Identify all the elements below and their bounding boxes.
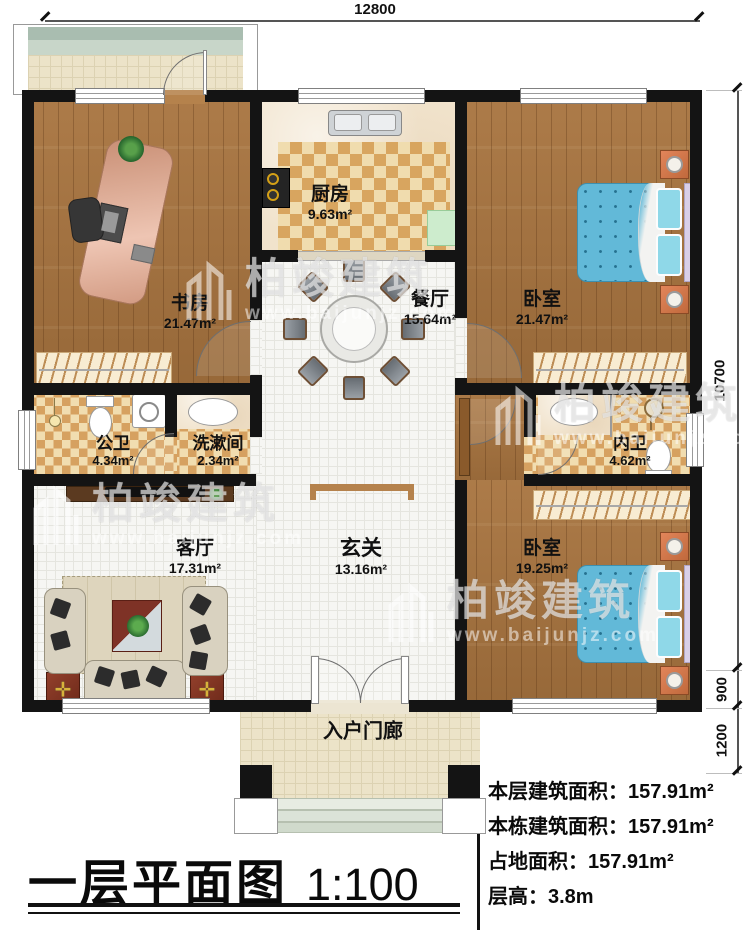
door-gap xyxy=(250,437,262,474)
dining-table-top xyxy=(332,307,376,351)
room-label-public-bath: 公卫 4.34m² xyxy=(92,434,133,468)
nightstand xyxy=(660,150,689,179)
stat-label: 本栋建筑面积： xyxy=(488,816,628,838)
stat-row: 本栋建筑面积：157.91m² xyxy=(488,810,714,845)
washer-drum xyxy=(139,402,159,422)
ensuite-sink xyxy=(550,398,598,426)
title-underline xyxy=(28,903,460,907)
porch-step xyxy=(270,798,450,810)
stat-value: 157.91m² xyxy=(628,781,714,803)
porch-column xyxy=(240,765,272,798)
stat-label: 占地面积： xyxy=(488,851,588,873)
door-gap xyxy=(455,318,467,378)
bedroom1-wardrobe xyxy=(533,352,687,385)
plant xyxy=(209,488,223,500)
nightstand xyxy=(660,285,689,314)
stat-value: 157.91m² xyxy=(588,851,674,873)
wall xyxy=(250,395,262,437)
living-window xyxy=(62,698,210,714)
nightstand xyxy=(660,666,689,695)
entry-door-leaf xyxy=(311,656,319,704)
kitchen-mat xyxy=(427,210,457,246)
pillow xyxy=(656,188,682,230)
toilet-tank xyxy=(86,396,114,407)
dining-chair xyxy=(283,318,307,340)
title-underline xyxy=(28,912,460,914)
pillow xyxy=(656,616,682,658)
room-name: 玄关 xyxy=(335,537,387,561)
porch-column-base xyxy=(234,798,278,834)
terrace-roof-band xyxy=(28,40,243,55)
pillow xyxy=(656,570,682,612)
dimension-stub xyxy=(706,90,742,91)
bedroom2-door-leaf xyxy=(459,398,470,476)
room-area: 4.62m² xyxy=(609,453,650,468)
study-window xyxy=(75,88,165,104)
porch-step xyxy=(270,810,450,822)
room-area: 15.64m² xyxy=(404,311,456,327)
wall xyxy=(455,102,467,318)
wall xyxy=(250,250,298,262)
wall xyxy=(461,383,696,395)
nightstand xyxy=(660,532,689,561)
room-name: 公卫 xyxy=(92,434,133,454)
room-label-bedroom2: 卧室 19.25m² xyxy=(516,538,568,576)
room-name: 入户门廊 xyxy=(323,721,403,744)
study-wardrobe xyxy=(36,352,172,385)
washroom-sink xyxy=(188,398,238,426)
stat-value: 3.8m xyxy=(548,886,594,908)
building-stats: 本层建筑面积：157.91m² 本栋建筑面积：157.91m² 占地面积：157… xyxy=(488,775,714,915)
dining-chair xyxy=(343,376,365,400)
room-name: 厨房 xyxy=(308,184,352,206)
entry-door-leaf xyxy=(401,656,409,704)
wall xyxy=(34,474,256,486)
room-area: 13.16m² xyxy=(335,561,387,577)
sofa-pillow xyxy=(189,651,209,671)
bedroom2-wardrobe xyxy=(533,490,691,520)
wall xyxy=(250,375,262,395)
title-divider xyxy=(477,834,480,930)
ensuite-window xyxy=(686,413,704,467)
door-gap xyxy=(250,320,262,375)
room-label-dining: 餐厅 15.64m² xyxy=(404,289,456,327)
burner xyxy=(267,189,279,201)
wall xyxy=(22,90,34,712)
porch-step xyxy=(270,822,450,833)
wall xyxy=(250,102,262,320)
wall xyxy=(690,90,702,712)
terrace-door-leaf xyxy=(203,50,207,95)
dimension-label-right-porch: 1200 xyxy=(714,701,731,781)
wall xyxy=(524,395,536,437)
room-name: 卧室 xyxy=(516,289,568,311)
room-label-study: 书房 21.47m² xyxy=(164,293,216,331)
plant xyxy=(118,136,144,162)
wall xyxy=(455,480,467,700)
porch-column xyxy=(448,765,480,798)
kitchen-window xyxy=(298,88,425,104)
sink-basin xyxy=(334,114,362,131)
stat-row: 占地面积：157.91m² xyxy=(488,845,714,880)
room-label-kitchen: 厨房 9.63m² xyxy=(308,184,352,222)
room-area: 21.47m² xyxy=(516,311,568,327)
stat-row: 层高：3.8m xyxy=(488,880,714,915)
public-bath-window xyxy=(18,410,36,470)
room-area: 2.34m² xyxy=(193,453,244,468)
bedroom1-window xyxy=(520,88,647,104)
terrace-roof-band xyxy=(28,27,243,40)
kitchen-opening-threshold xyxy=(298,251,425,261)
stat-label: 本层建筑面积： xyxy=(488,781,628,803)
room-area: 4.34m² xyxy=(92,453,133,468)
room-name: 内卫 xyxy=(609,434,650,454)
room-area: 9.63m² xyxy=(308,206,352,222)
room-area: 17.31m² xyxy=(169,560,221,576)
room-label-washroom: 洗漱间 2.34m² xyxy=(193,434,244,468)
stat-row: 本层建筑面积：157.91m² xyxy=(488,775,714,810)
door-gap xyxy=(524,437,536,474)
kitchen-floor-checker xyxy=(278,142,450,252)
wall xyxy=(165,395,177,437)
burner xyxy=(267,173,279,185)
room-name: 书房 xyxy=(164,293,216,315)
wall xyxy=(425,250,467,262)
room-label-foyer: 玄关 13.16m² xyxy=(335,537,387,577)
room-name: 餐厅 xyxy=(404,289,456,311)
console-table xyxy=(310,484,414,500)
stat-label: 层高： xyxy=(488,886,548,908)
room-area: 21.47m² xyxy=(164,315,216,331)
room-name: 客厅 xyxy=(169,538,221,560)
dimension-line-top xyxy=(45,20,700,22)
bedroom2-window xyxy=(512,698,657,714)
porch-column-base xyxy=(442,798,486,834)
room-label-ensuite: 内卫 4.62m² xyxy=(609,434,650,468)
shower-head xyxy=(644,398,664,418)
wall xyxy=(34,383,250,395)
ensuite-partition xyxy=(610,389,612,437)
plant xyxy=(127,615,149,637)
floor-plan-canvas: 12800 10700 900 1200 xyxy=(0,0,750,932)
dimension-label-right-main: 10700 xyxy=(712,341,729,421)
lamp-cord xyxy=(54,398,55,416)
room-area: 19.25m² xyxy=(516,560,568,576)
pillow xyxy=(656,234,682,276)
room-label-living: 客厅 17.31m² xyxy=(169,538,221,576)
room-name: 洗漱间 xyxy=(193,434,244,454)
tv xyxy=(105,487,205,497)
room-label-porch: 入户门廊 xyxy=(323,721,403,744)
office-chair xyxy=(67,196,105,244)
sink-basin xyxy=(368,114,396,131)
room-label-bedroom1: 卧室 21.47m² xyxy=(516,289,568,327)
dining-chair xyxy=(343,258,365,282)
ceiling-lamp xyxy=(49,415,61,427)
wall xyxy=(524,474,690,486)
stat-value: 157.91m² xyxy=(628,816,714,838)
room-name: 卧室 xyxy=(516,538,568,560)
shower-hose xyxy=(650,416,652,430)
dimension-label-top: 12800 xyxy=(330,1,420,18)
sofa-pillow xyxy=(120,669,140,689)
